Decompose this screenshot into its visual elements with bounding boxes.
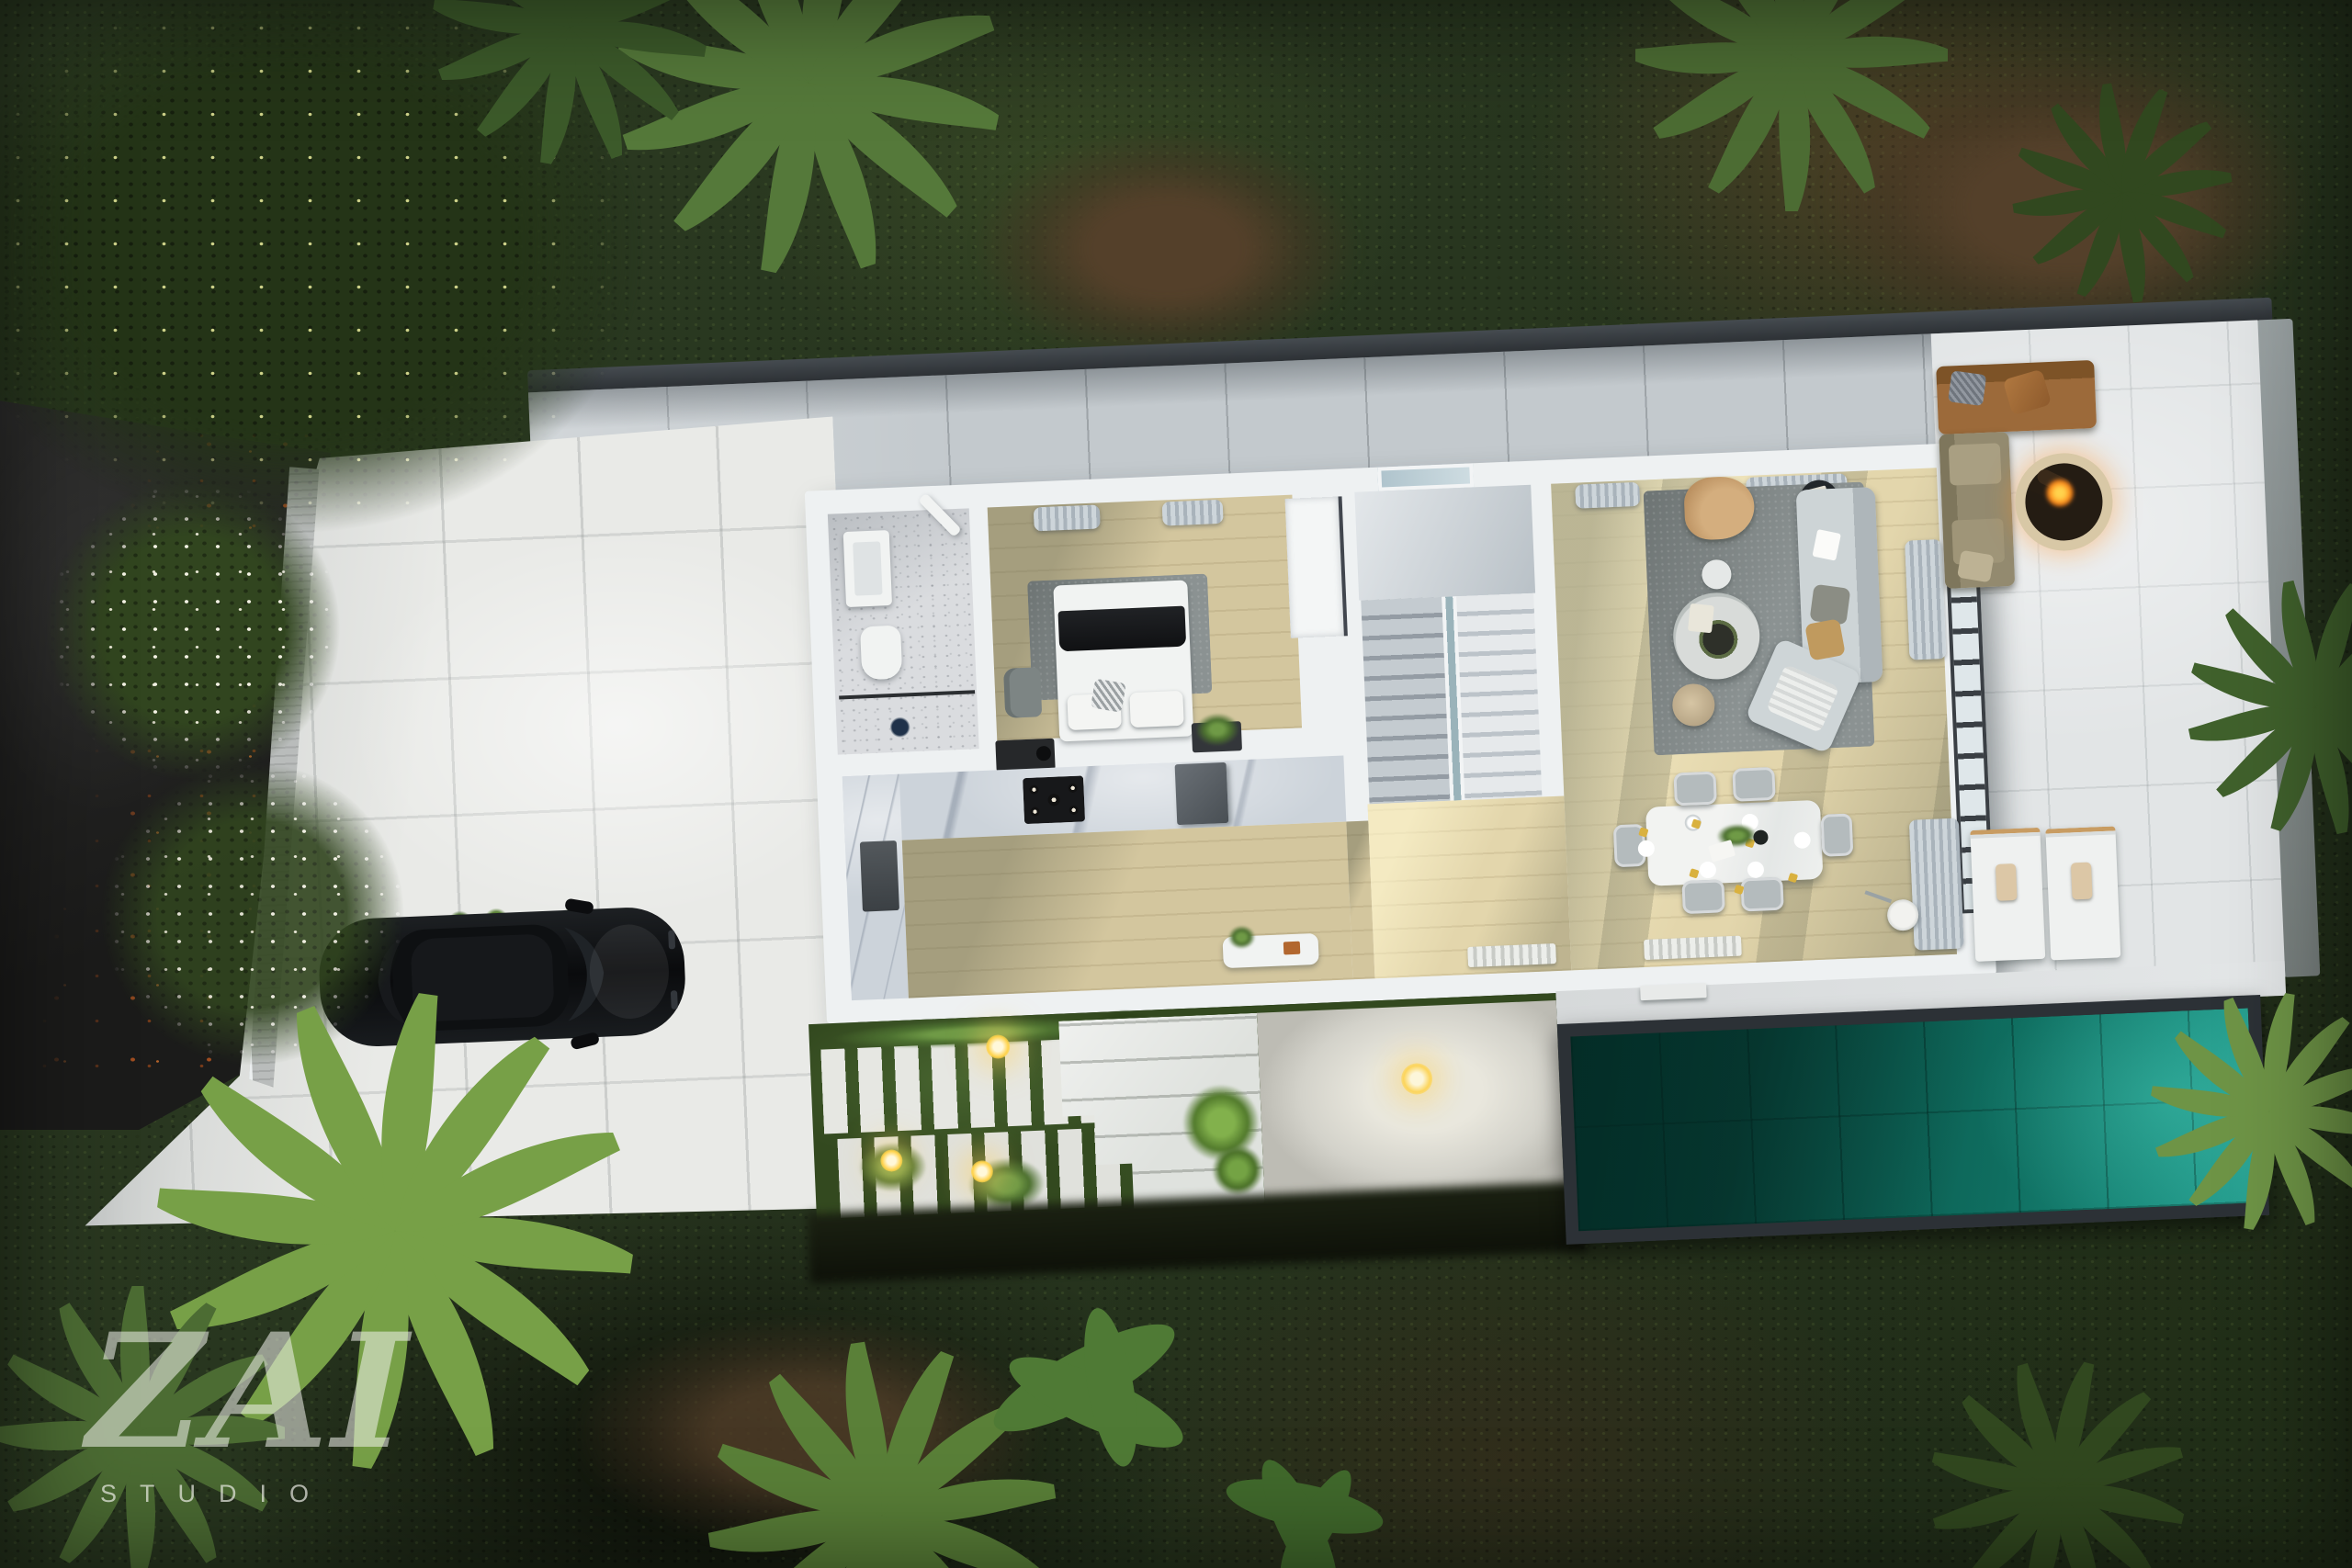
- studio-watermark: ZAI STUDIO: [87, 1321, 410, 1508]
- brand-logo-text: ZAI: [73, 1321, 425, 1463]
- aerial-villa-render: ZAI STUDIO: [0, 0, 2352, 1568]
